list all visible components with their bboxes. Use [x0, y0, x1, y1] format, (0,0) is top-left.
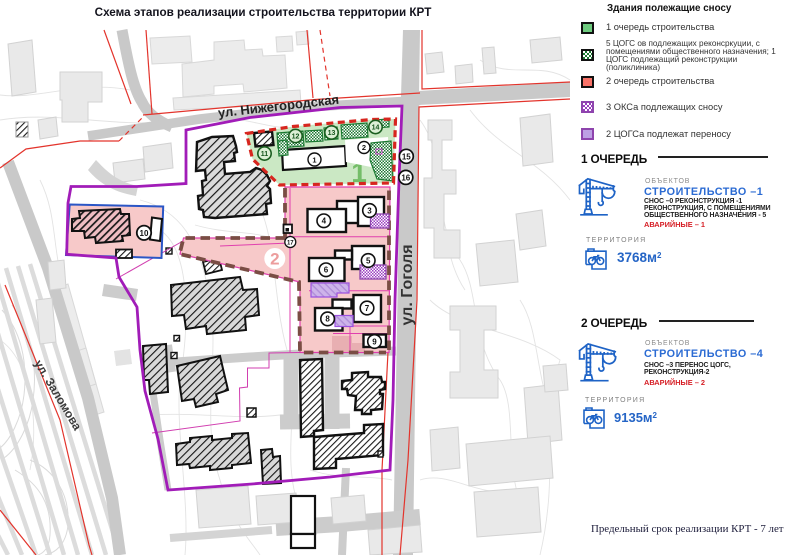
svg-text:17: 17: [287, 240, 294, 246]
svg-text:13: 13: [328, 130, 336, 137]
svg-text:ул. Гоголя: ул. Гоголя: [399, 244, 416, 325]
svg-text:8: 8: [325, 315, 330, 324]
svg-text:1: 1: [312, 155, 316, 164]
svg-text:5: 5: [366, 256, 371, 265]
svg-text:12: 12: [292, 134, 300, 141]
svg-text:14: 14: [372, 125, 380, 132]
svg-text:2: 2: [362, 143, 366, 152]
svg-text:15: 15: [402, 152, 411, 161]
svg-text:9: 9: [372, 337, 377, 346]
svg-text:16: 16: [401, 173, 410, 182]
svg-text:6: 6: [324, 266, 329, 275]
svg-text:Схема этапов реализации строит: Схема этапов реализации строительства те…: [95, 6, 433, 19]
svg-text:3: 3: [367, 206, 372, 215]
svg-text:10: 10: [140, 229, 149, 238]
svg-text:11: 11: [261, 151, 269, 158]
svg-text:4: 4: [322, 217, 327, 226]
svg-text:7: 7: [365, 304, 370, 313]
svg-text:2: 2: [270, 250, 279, 269]
